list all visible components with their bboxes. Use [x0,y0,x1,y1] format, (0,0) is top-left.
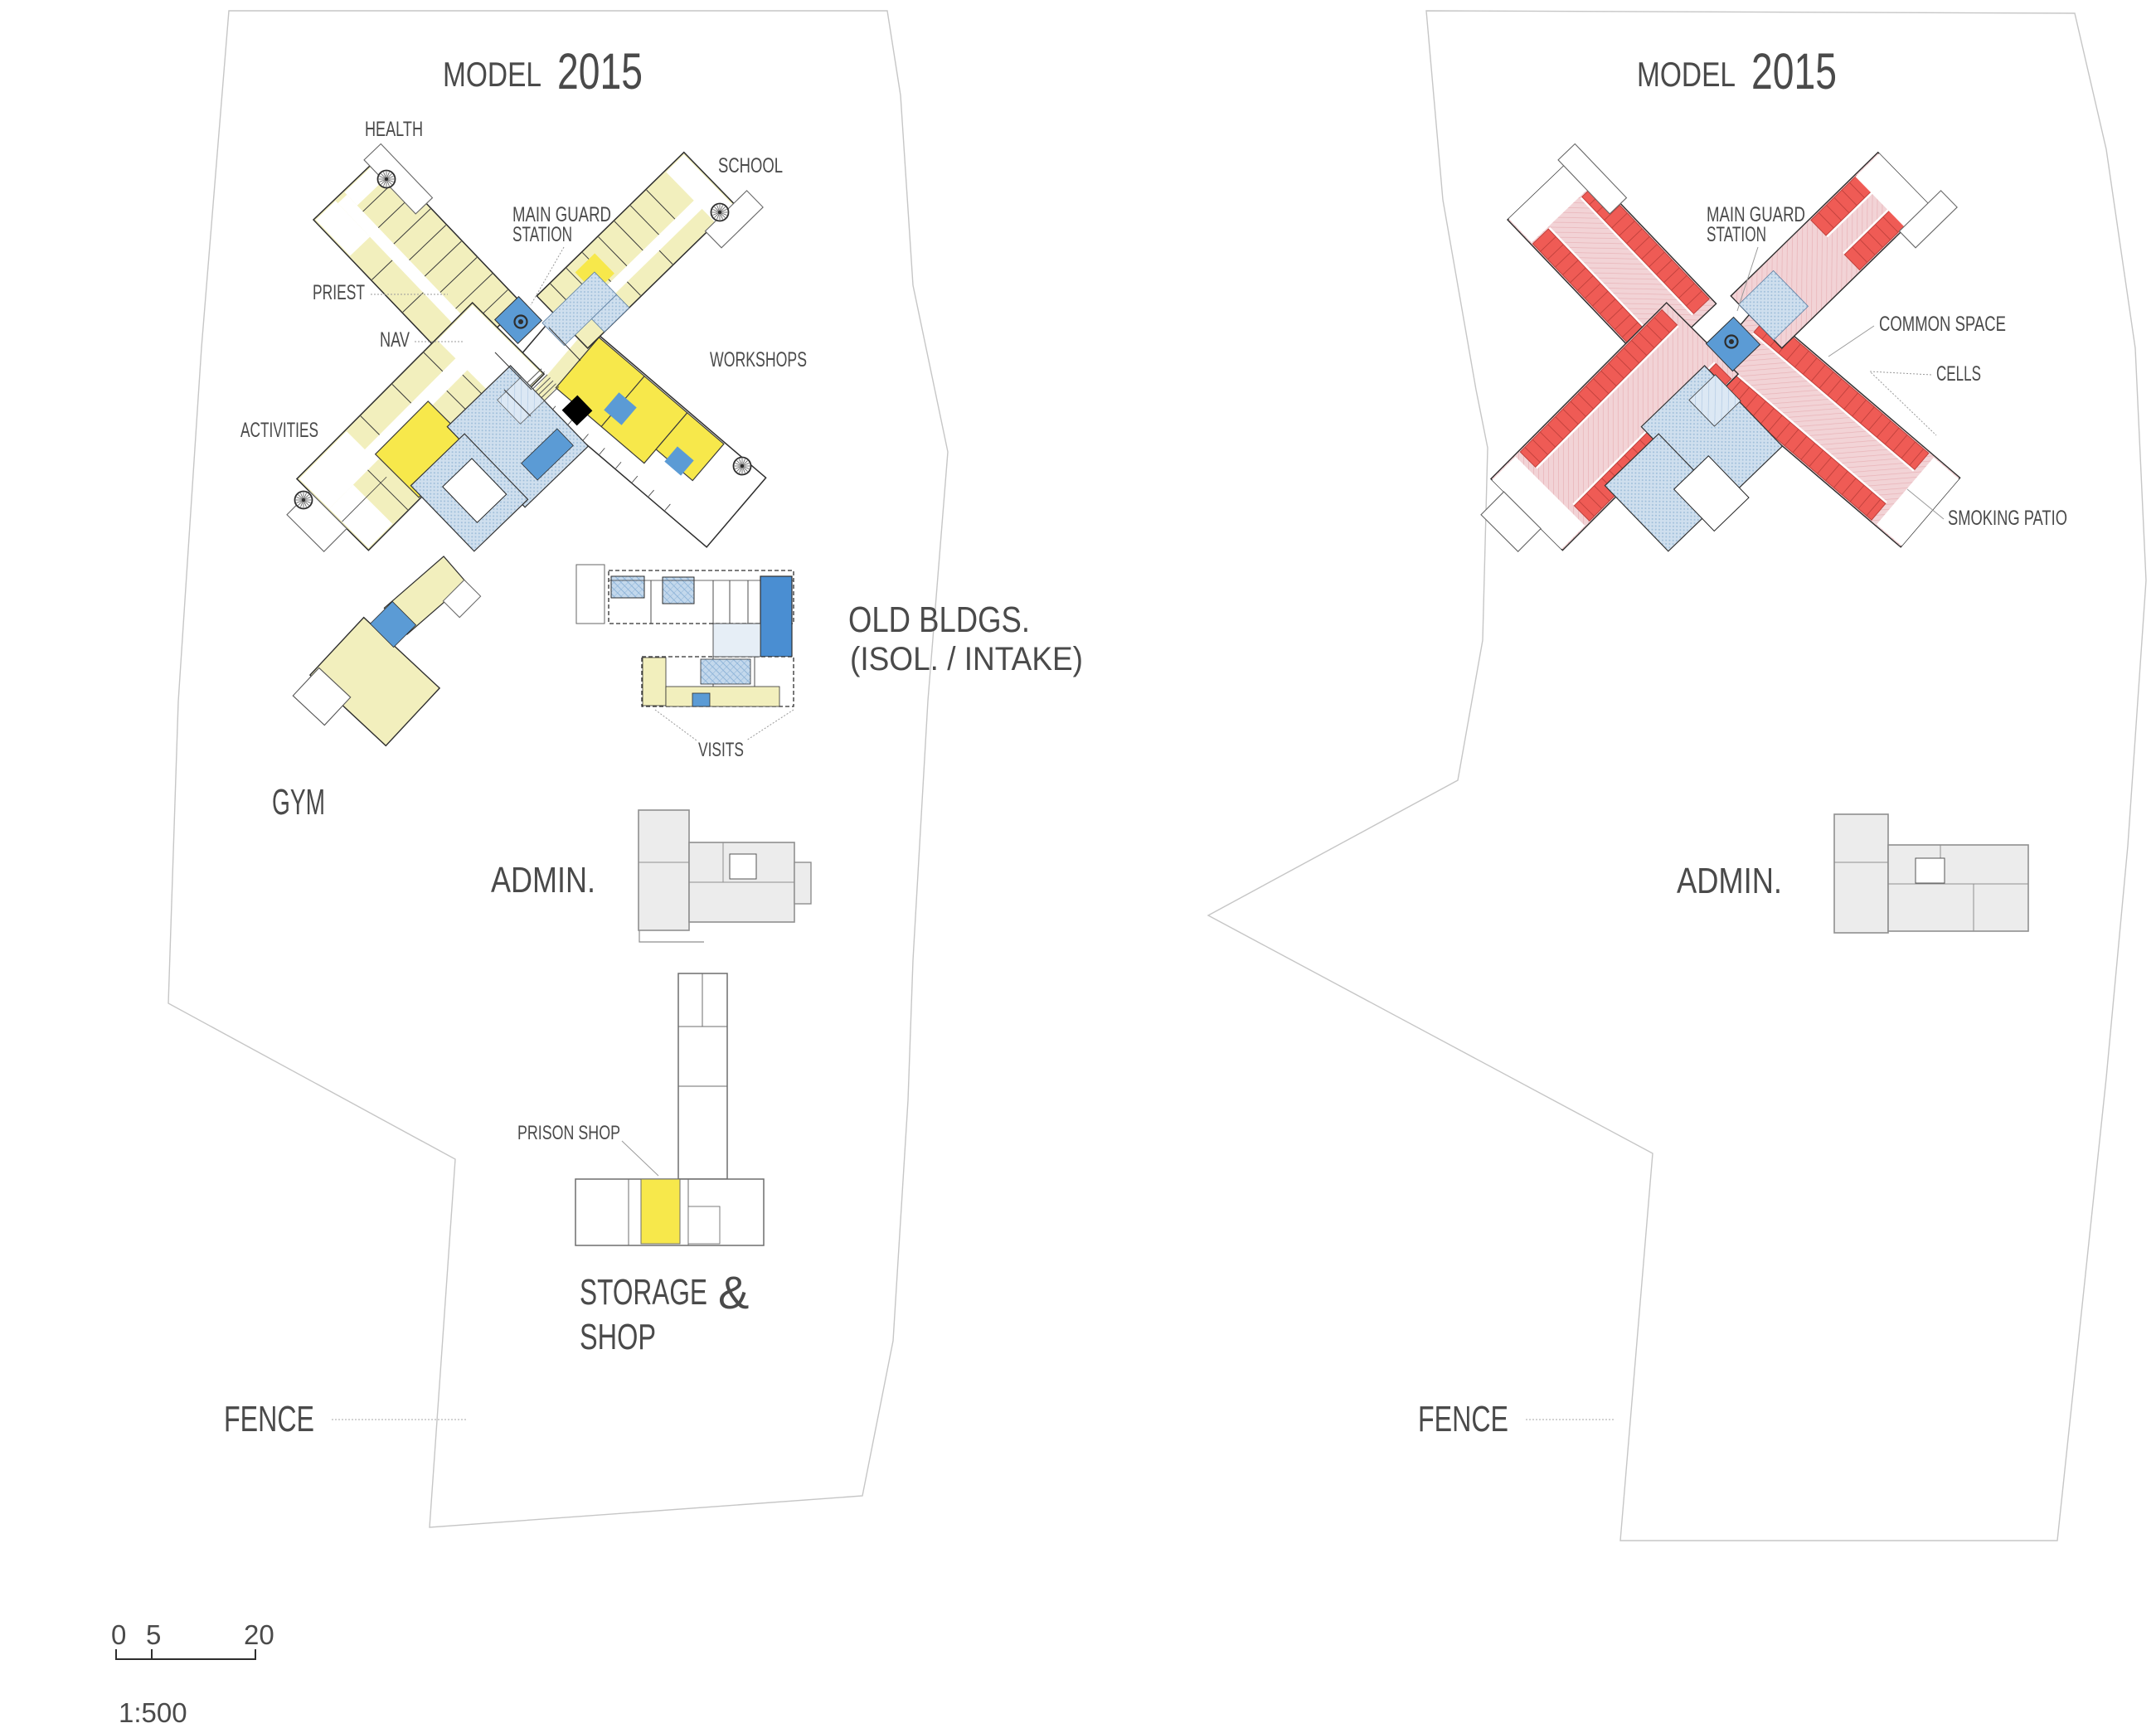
svg-text:STATION: STATION [1707,223,1766,246]
svg-text:GYM: GYM [272,782,325,823]
svg-text:ADMIN.: ADMIN. [1677,861,1782,901]
svg-text:STATION: STATION [512,223,572,246]
svg-text:&: & [718,1266,749,1318]
svg-text:PRISON SHOP: PRISON SHOP [517,1122,620,1144]
svg-text:FENCE: FENCE [1418,1399,1508,1439]
svg-text:SCHOOL: SCHOOL [718,154,783,177]
svg-text:OLD BLDGS.: OLD BLDGS. [848,599,1030,640]
svg-text:0: 0 [111,1619,126,1650]
svg-text:MODEL: MODEL [1637,55,1736,94]
svg-text:MODEL: MODEL [443,55,541,94]
svg-text:HEALTH: HEALTH [365,118,423,141]
svg-text:FENCE: FENCE [224,1399,314,1439]
svg-text:(ISOL. / INTAKE): (ISOL. / INTAKE) [850,641,1083,677]
svg-text:STORAGE: STORAGE [580,1272,707,1313]
svg-text:ADMIN.: ADMIN. [491,860,595,900]
svg-text:2015: 2015 [557,43,643,100]
svg-text:NAV: NAV [380,328,410,352]
svg-text:ACTIVITIES: ACTIVITIES [240,419,318,442]
svg-text:CELLS: CELLS [1936,362,1981,386]
svg-text:VISITS: VISITS [698,739,744,761]
svg-text:PRIEST: PRIEST [313,281,365,304]
svg-text:SHOP: SHOP [580,1317,656,1357]
svg-text:2015: 2015 [1751,43,1837,100]
svg-text:20: 20 [244,1619,274,1650]
svg-text:1:500: 1:500 [119,1697,187,1728]
svg-text:WORKSHOPS: WORKSHOPS [710,348,807,371]
svg-text:5: 5 [146,1619,161,1650]
svg-text:SMOKING PATIO: SMOKING PATIO [1948,507,2067,530]
svg-text:COMMON SPACE: COMMON SPACE [1879,313,2006,336]
